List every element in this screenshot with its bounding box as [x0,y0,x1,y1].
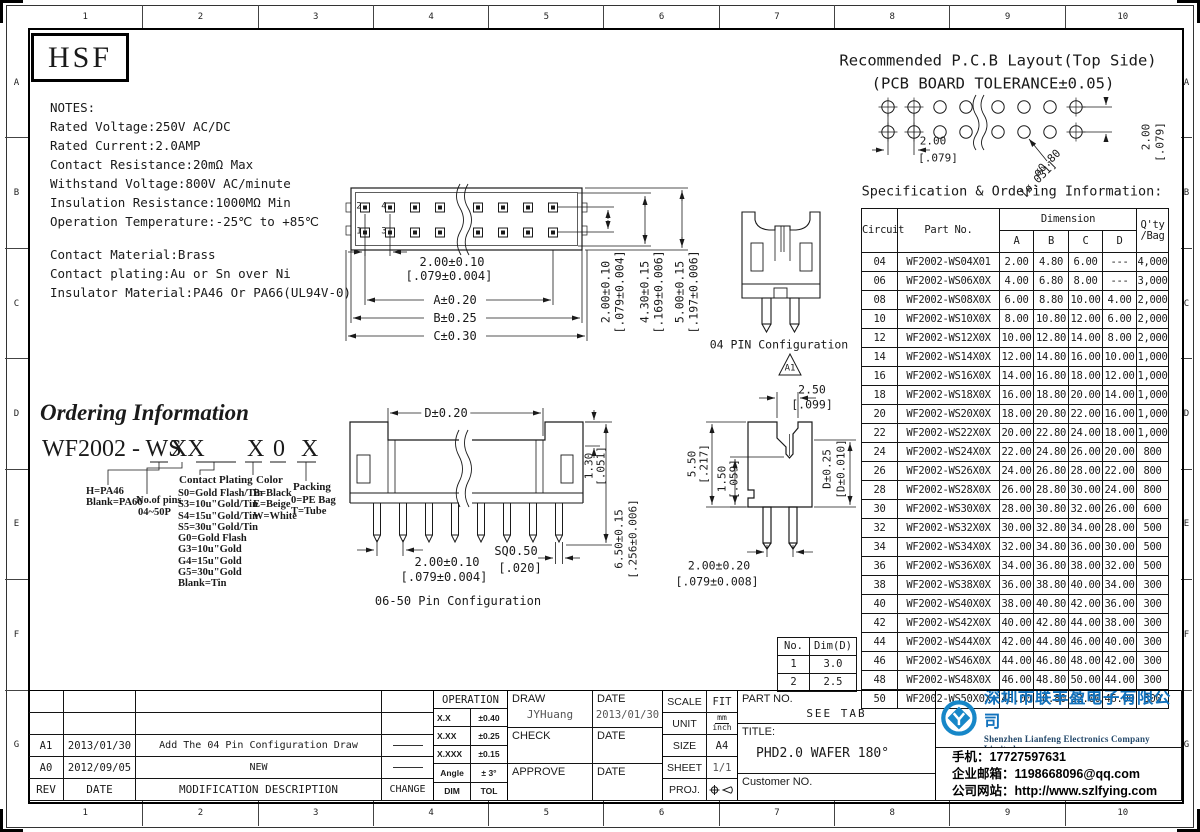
spec-cell: 04 [862,253,898,272]
spec-row: 20WF2002-WS20X0X18.0020.8022.0016.001,00… [862,405,1169,424]
projection-symbol-cell [707,779,738,801]
spec-table: Circuit Part No. Dimension Q'ty /Bag A B… [861,208,1169,709]
unit-inch: inch [712,724,731,733]
spec-cell: 18.80 [1034,386,1069,405]
spec-cell: 36.00 [1069,538,1103,557]
ruler-row-label: B [5,137,28,247]
plating-option: Blank=Tin [178,578,263,589]
spec-cell: 42.00 [1000,633,1034,652]
plating-option: G4=15u"Gold [178,556,263,567]
ruler-col-label: 6 [603,5,718,28]
spec-cell: 46.80 [1034,652,1069,671]
plating-option: G5=30u"Gold [178,567,263,578]
spec-cell: 30.00 [1103,538,1137,557]
rev-empty-cell [382,713,434,735]
ruler-row-label: E [5,469,28,579]
dim-cell: 2 [778,674,810,692]
dim-table-header-no: No. [778,638,810,656]
spec-cell: 30.80 [1034,500,1069,519]
unit-label: UNIT [663,713,707,735]
spec-cell: 38 [862,576,898,595]
sheet-label: SHEET [663,757,707,779]
ruler-col-label: 8 [834,5,949,28]
spec-cell: 42.00 [1103,652,1137,671]
spec-caption: Specification & Ordering Information: [862,185,1163,199]
dim-cell: 1 [778,656,810,674]
spec-cell: 28.00 [1103,519,1137,538]
ordering-heading: Ordering Information [40,400,249,426]
spec-cell: 20.00 [1103,443,1137,462]
spec-cell: 4.80 [1034,253,1069,272]
spec-cell: 20.00 [1069,386,1103,405]
spec-cell: 48 [862,671,898,690]
spec-cell: 14 [862,348,898,367]
spec-cell: --- [1103,253,1137,272]
ordering-part-prefix: WF2002 - WS [42,436,182,463]
ordering-material-options: H=PA46Blank=PA66 [86,486,143,509]
packing-option: T=Tube [291,506,336,517]
plating-option: G3=10u"Gold [178,544,263,555]
spec-cell: 32 [862,519,898,538]
spec-cell: 38.00 [1000,595,1034,614]
rev-id: A1 [29,735,64,757]
part-no-cell: PART NO. SEE TAB [738,691,936,724]
fv-pitch-label: 2.00±0.10 [414,556,479,568]
spec-cell: 44 [862,633,898,652]
company-contact: 手机：17727597631 企业邮箱：1198668096@qq.com 公司… [936,748,1182,801]
title-cell: TITLE: PHD2.0 WAFER 180° [738,724,936,774]
fv-h1-label: 1.30 [584,453,595,480]
spec-cell: 40 [862,595,898,614]
date-label: DATE [597,693,626,705]
size-value: A4 [707,735,738,757]
spec-cell: 32.00 [1069,500,1103,519]
spec-header-d: D [1103,231,1137,253]
note-line: Rated Current:2.0AMP [50,136,319,155]
spec-cell: 300 [1137,576,1169,595]
spec-cell: WF2002-WS46X0X [898,652,1000,671]
ordering-pins-note-1: No.of pins [136,495,182,506]
sv-d-inch-label: [D±0.010] [836,439,847,499]
company-header: 深圳市联丰盈电子有限公司 Shenzhen Lianfeng Electroni… [936,691,1182,748]
spec-row: 28WF2002-WS28X0X26.0028.8030.0024.00800 [862,481,1169,500]
tv-dim-b-label: B±0.25 [430,312,479,324]
tol-val: ±0.25 [471,727,508,745]
spec-cell: 300 [1137,595,1169,614]
tol-val: ±0.40 [471,709,508,727]
spec-cell: 38.80 [1034,576,1069,595]
spec-cell: 40.80 [1034,595,1069,614]
fv-h2-inch-label: [.256±0.006] [628,499,639,578]
pcb-title-1: Recommended P.C.B Layout(Top Side) [839,53,1156,69]
rev-description: Add The 04 Pin Configuration Draw [136,735,382,757]
pin-number-3: 3 [381,228,386,237]
ruler-band-left: ABCDEFG [5,28,28,800]
ruler-col-label: 3 [258,5,373,28]
spec-cell: 24.00 [1103,481,1137,500]
tol-val: ±0.15 [471,746,508,764]
spec-cell: 22.00 [1103,462,1137,481]
tol-dim: X.XX [434,727,471,745]
spec-cell: WF2002-WS42X0X [898,614,1000,633]
ruler-band-top: 12345678910 [28,5,1180,28]
spec-cell: 26.80 [1034,462,1069,481]
plating-option: S0=Gold Flash/Tin [178,488,263,499]
spec-cell: 36.00 [1103,595,1137,614]
customer-no-label: Customer NO. [742,776,812,788]
ordering-seg-color: 0 [273,436,285,463]
spec-cell: WF2002-WS36X0X [898,557,1000,576]
spec-cell: WF2002-WS34X0X [898,538,1000,557]
pin04-caption: 04 PIN Configuration [710,339,848,351]
title-value: PHD2.0 WAFER 180° [756,746,889,761]
tv-dim-c-label: C±0.30 [430,330,479,342]
plating-option: S3=10u"Gold/Tin [178,499,263,510]
pcb-row-pitch-label: 2.00 [1141,124,1152,151]
spec-cell: 12.00 [1000,348,1034,367]
spec-cell: 36.80 [1034,557,1069,576]
spec-cell: 800 [1137,481,1169,500]
ruler-row-label: D [5,358,28,468]
rev-empty-cell [64,691,136,713]
spec-row: 22WF2002-WS22X0X20.0022.8024.0018.001,00… [862,424,1169,443]
spec-cell: 300 [1137,614,1169,633]
customer-no-cell: Customer NO. [738,774,936,801]
spec-cell: 50.00 [1069,671,1103,690]
spec-row: 36WF2002-WS36X0X34.0036.8038.0032.00500 [862,557,1169,576]
part-no-value: SEE TAB [806,707,866,720]
ordering-seg-packing: X [301,436,318,463]
tv-v1-label: 2.00±0.10 [600,261,612,323]
spec-cell: WF2002-WS20X0X [898,405,1000,424]
ordering-plating-title: Contact Plating [179,475,253,486]
spec-cell: 16 [862,367,898,386]
spec-cell: 3,000 [1137,272,1169,291]
material-option: Blank=PA66 [86,497,143,508]
operation-title: OPERATION [434,691,508,709]
spec-cell: 22 [862,424,898,443]
approve-cell: APPROVE [508,764,593,801]
spec-cell: 48.00 [1069,652,1103,671]
date-label: DATE [597,766,626,778]
spec-cell: WF2002-WS30X0X [898,500,1000,519]
approve-date-cell: DATE [593,764,663,801]
spec-cell: 42 [862,614,898,633]
spec-cell: WF2002-WS32X0X [898,519,1000,538]
spec-cell: 48.80 [1034,671,1069,690]
tv-dim-a-label: A±0.20 [430,294,479,306]
spec-cell: 26.00 [1103,500,1137,519]
spec-cell: 1,000 [1137,348,1169,367]
fv-h2-label: 6.50±0.15 [614,509,625,569]
spec-cell: 36.00 [1000,576,1034,595]
scale-value: FIT [707,691,738,713]
rev-empty-cell [64,713,136,735]
spec-cell: 26.00 [1069,443,1103,462]
spec-cell: 42.00 [1069,595,1103,614]
spec-header-dimension: Dimension [1000,209,1137,231]
spec-cell: 24.00 [1069,424,1103,443]
dim-table: No. Dim(D) 13.022.5 [777,637,857,692]
note-line: Withstand Voltage:800V AC/minute [50,174,319,193]
rev-header-description: MODIFICATION DESCRIPTION [136,779,382,801]
spec-cell: 28 [862,481,898,500]
ruler-row-label: G [5,690,28,800]
tv-v2-label: 4.30±0.15 [639,261,651,323]
title-label: TITLE: [742,726,775,738]
spec-cell: 20 [862,405,898,424]
spec-cell: 2,000 [1137,310,1169,329]
ruler-row-label: F [5,579,28,689]
ruler-col-label: 10 [1065,5,1180,28]
spec-cell: 8.00 [1069,272,1103,291]
hsf-logo-text: HSF [48,41,112,75]
draw-date-cell: DATE 2013/01/30 [593,691,663,728]
spec-cell: 30.00 [1069,481,1103,500]
note-line: Insulation Resistance:1000MΩ Min [50,193,319,212]
spec-cell: WF2002-WS26X0X [898,462,1000,481]
spec-cell: 300 [1137,633,1169,652]
drawing-sheet: 12345678910 12345678910 ABCDEFG ABCDEFG … [0,0,1200,832]
draw-date: 2013/01/30 [596,709,659,721]
spec-cell: 46 [862,652,898,671]
ruler-row-label: C [5,248,28,358]
pin-number-4: 4 [381,203,386,212]
spec-cell: WF2002-WS16X0X [898,367,1000,386]
spec-cell: 300 [1137,652,1169,671]
spec-cell: WF2002-WS18X0X [898,386,1000,405]
fv-sq-label: SQ0.50 [494,545,537,557]
spec-cell: 10.00 [1103,348,1137,367]
spec-row: 44WF2002-WS44X0X42.0044.8046.0040.00300 [862,633,1169,652]
ruler-col-label: 5 [488,5,603,28]
sv-d-label: D±0.25 [822,449,833,489]
spec-cell: 46.00 [1000,671,1034,690]
spec-row: 14WF2002-WS14X0X12.0014.8016.0010.001,00… [862,348,1169,367]
tol-dim: DIM [434,783,471,801]
spec-cell: 26.00 [1000,481,1034,500]
spec-cell: 32.80 [1034,519,1069,538]
tol-dim: X.X [434,709,471,727]
draw-name: JYHuang [527,708,573,721]
spec-cell: 06 [862,272,898,291]
ordering-plating-options: S0=Gold Flash/TinS3=10u"Gold/TinS4=15u"G… [178,488,263,590]
spec-cell: 26 [862,462,898,481]
tv-pitch-label: 2.00±0.10 [419,256,484,268]
plating-option: G0=Gold Flash [178,533,263,544]
spec-cell: 800 [1137,443,1169,462]
fv-pitch-inch-label: [.079±0.004] [401,571,488,583]
spec-cell: 10.80 [1034,310,1069,329]
spec-cell: WF2002-WS12X0X [898,329,1000,348]
spec-cell: 24 [862,443,898,462]
sv-w-inch-label: [.099] [791,399,833,411]
spec-cell: 1,000 [1137,386,1169,405]
hsf-logo: HSF [31,33,129,82]
spec-cell: 32.00 [1103,557,1137,576]
spec-cell: 38.00 [1069,557,1103,576]
spec-cell: 08 [862,291,898,310]
spec-row: 42WF2002-WS42X0X40.0042.8044.0038.00300 [862,614,1169,633]
spec-header-a: A [1000,231,1034,253]
projection-label: PROJ. [663,779,707,801]
plating-option: S5=30u"Gold/Tin [178,522,263,533]
spec-cell: 46.00 [1069,633,1103,652]
spec-cell: 4,000 [1137,253,1169,272]
spec-cell: 40.00 [1103,633,1137,652]
dim-cell: 2.5 [810,674,857,692]
spec-cell: 20.80 [1034,405,1069,424]
spec-header-circuit: Circuit [862,209,898,253]
sheet-value: 1/1 [707,757,738,779]
check-label: CHECK [512,730,551,742]
spec-cell: 500 [1137,538,1169,557]
ruler-col-label: 4 [373,5,488,28]
rev-change-mark [382,735,434,757]
spec-cell: 500 [1137,557,1169,576]
spec-row: 32WF2002-WS32X0X30.0032.8034.0028.00500 [862,519,1169,538]
spec-cell: --- [1103,272,1137,291]
fv-h1-inch-label: [.051] [596,446,607,486]
spec-cell: 34.00 [1103,576,1137,595]
ordering-packing-options: 0=PE BagT=Tube [291,495,336,518]
spec-cell: 14.00 [1069,329,1103,348]
ordering-seg-pins: XX [170,436,205,463]
sv-h2-inch-label: [.059] [729,459,740,499]
rev-change-mark [382,757,434,779]
spec-cell: 28.00 [1000,500,1034,519]
draw-cell: DRAW JYHuang [508,691,593,728]
spec-header-b: B [1034,231,1069,253]
sv-h2-label: 1.50 [717,466,728,493]
pcb-pitch-inch-label: [.079] [918,153,958,164]
spec-cell: 28.80 [1034,481,1069,500]
spec-row: 40WF2002-WS40X0X38.0040.8042.0036.00300 [862,595,1169,614]
dim-row: 13.0 [778,656,857,674]
ordering-packing-title: Packing [293,482,331,493]
ruler-row-label: A [5,28,28,137]
sv-pitch-label: 2.00±0.20 [688,560,750,572]
ruler-col-label: 2 [142,5,257,28]
rev-empty-cell [29,713,64,735]
spec-cell: 2,000 [1137,329,1169,348]
scale-label: SCALE [663,691,707,713]
spec-cell: WF2002-WS38X0X [898,576,1000,595]
spec-cell: 40.00 [1000,614,1034,633]
rev-header-rev: REV [29,779,64,801]
spec-cell: 34.80 [1034,538,1069,557]
sheet-meta-table: SCALE FIT UNIT mm inch SIZE A4 SHEET 1/1… [662,690,737,800]
spec-cell: 18.00 [1103,424,1137,443]
spec-cell: 24.80 [1034,443,1069,462]
part-info-table: PART NO. SEE TAB TITLE: PHD2.0 WAFER 180… [737,690,935,800]
rev-empty-cell [29,691,64,713]
part-no-label: PART NO. [742,693,793,705]
spec-cell: WF2002-WS06X0X [898,272,1000,291]
spec-row: 46WF2002-WS46X0X44.0046.8048.0042.00300 [862,652,1169,671]
spec-cell: 14.00 [1000,367,1034,386]
spec-cell: 40.00 [1069,576,1103,595]
spec-cell: 18.00 [1069,367,1103,386]
spec-cell: 1,000 [1137,424,1169,443]
rev-date: 2012/09/05 [64,757,136,779]
pcb-row-pitch-inch-label: [.079] [1155,122,1166,162]
spec-cell: 30.00 [1000,519,1034,538]
spec-row: 08WF2002-WS08X0X6.008.8010.004.002,000 [862,291,1169,310]
tol-dim: X.XXX [434,746,471,764]
spec-cell: 8.00 [1103,329,1137,348]
spec-cell: 18.00 [1000,405,1034,424]
spec-cell: 44.80 [1034,633,1069,652]
spec-cell: 24.00 [1000,462,1034,481]
spec-cell: WF2002-WS28X0X [898,481,1000,500]
spec-cell: 44.00 [1103,671,1137,690]
note-line: Operation Temperature:-25℃ to +85℃ [50,212,319,231]
spec-cell: 1,000 [1137,405,1169,424]
spec-cell: 500 [1137,519,1169,538]
pcb-title-2: (PCB BOARD TOLERANCE±0.05) [872,76,1115,92]
notes-lines: Rated Voltage:250V AC/DCRated Current:2.… [50,117,319,231]
spec-cell: 4.00 [1103,291,1137,310]
spec-cell: WF2002-WS04X01 [898,253,1000,272]
ordering-color-title: Color [256,475,283,486]
spec-cell: 18 [862,386,898,405]
spec-cell: 12.00 [1069,310,1103,329]
company-name-en: Shenzhen Lianfeng Electronics Company Li… [984,734,1177,748]
note-line: Insulator Material:PA46 Or PA66(UL94V-0) [50,283,351,302]
spec-cell: 34 [862,538,898,557]
draw-label: DRAW [512,693,545,705]
plating-option: S4=15u"Gold/Tin [178,511,263,522]
spec-cell: 2,000 [1137,291,1169,310]
spec-header-part: Part No. [898,209,1000,253]
spec-cell: 36 [862,557,898,576]
projection-symbol-icon [709,784,735,796]
spec-header-qty: Q'ty /Bag [1137,209,1169,253]
spec-cell: 2.00 [1000,253,1034,272]
spec-row: 38WF2002-WS38X0X36.0038.8040.0034.00300 [862,576,1169,595]
spec-cell: 38.00 [1103,614,1137,633]
spec-cell: 28.00 [1069,462,1103,481]
packing-option: 0=PE Bag [291,495,336,506]
spec-cell: 34.00 [1069,519,1103,538]
spec-row: 24WF2002-WS24X0X22.0024.8026.0020.00800 [862,443,1169,462]
spec-cell: 6.00 [1069,253,1103,272]
pin04-revision-mark: A1 [785,365,796,374]
ruler-col-label: 1 [28,5,142,28]
check-date-cell: DATE [593,728,663,765]
approve-label: APPROVE [512,766,565,778]
spec-cell: 12 [862,329,898,348]
tv-v3-inch-label: [.197±0.006] [688,250,700,333]
note-line: Contact Material:Brass [50,245,351,264]
date-label: DATE [597,730,626,742]
spec-header-c: C [1069,231,1103,253]
spec-header-qty-top: Q'ty [1137,220,1168,231]
spec-cell: 20.00 [1000,424,1034,443]
spec-cell: 10 [862,310,898,329]
spec-cell: 14.80 [1034,348,1069,367]
material-option: H=PA46 [86,486,143,497]
sv-w-label: 2.50 [798,384,826,396]
notes-materials: Contact Material:BrassContact plating:Au… [50,245,351,302]
spec-cell: WF2002-WS14X0X [898,348,1000,367]
spec-cell: 14.00 [1103,386,1137,405]
spec-row: 12WF2002-WS12X0X10.0012.8014.008.002,000 [862,329,1169,348]
spec-row: 06WF2002-WS06X0X4.006.808.00---3,000 [862,272,1169,291]
spec-cell: 10.00 [1069,291,1103,310]
company-email: 企业邮箱：1198668096@qq.com [952,766,1140,783]
